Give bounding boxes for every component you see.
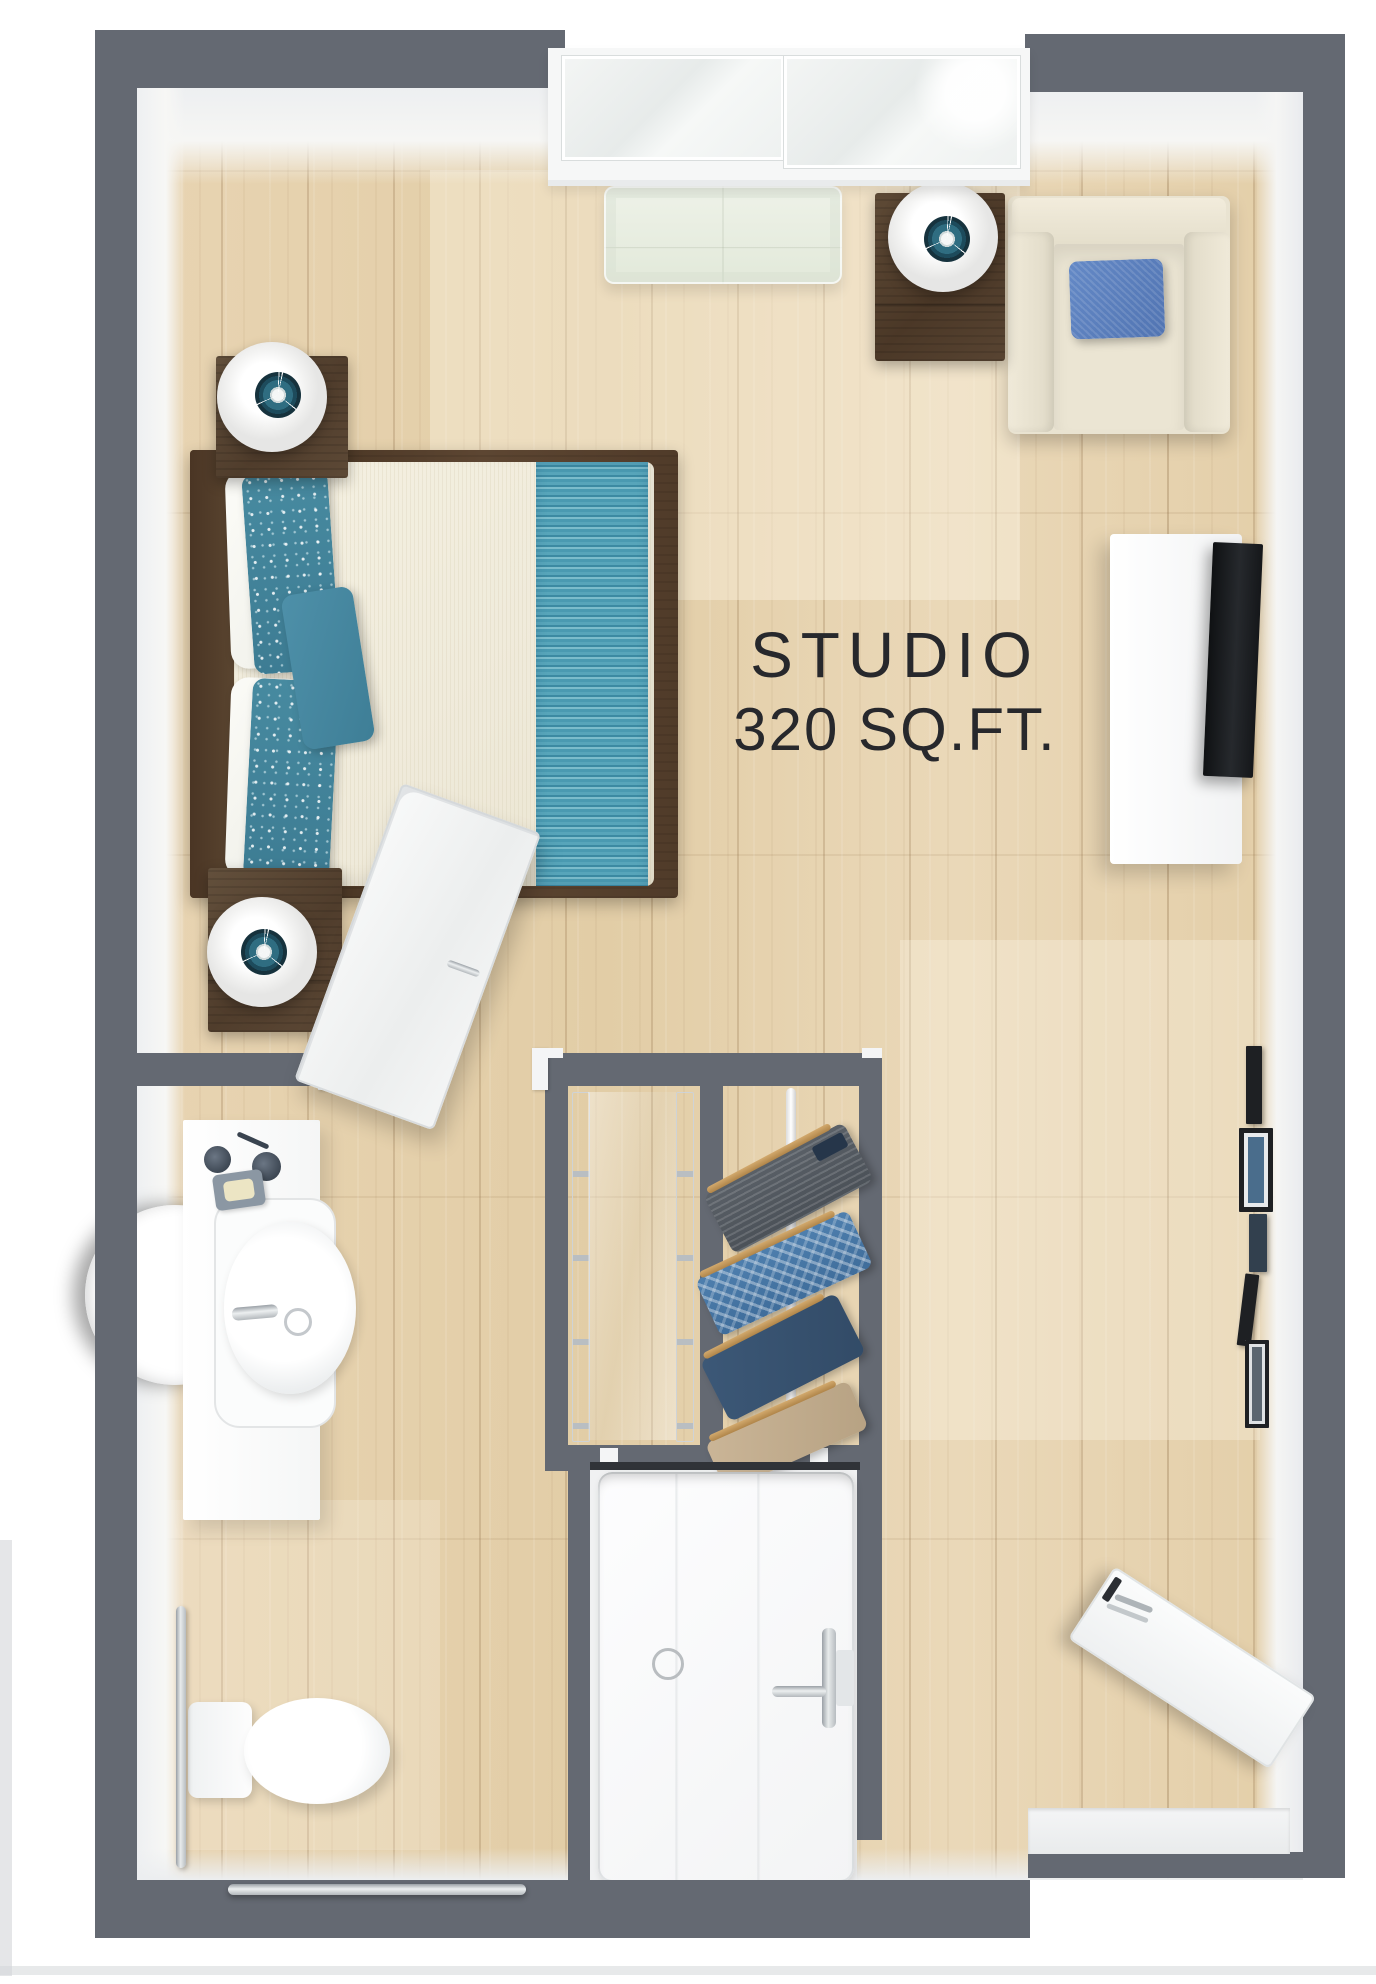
wall-entry-strip [1028, 1852, 1290, 1878]
wall-frame-icon [1246, 1046, 1262, 1124]
soap-dish-icon [212, 1169, 267, 1212]
wall-right [1303, 34, 1345, 1878]
door-latch [836, 1650, 854, 1706]
partition-closet-left [545, 1086, 568, 1468]
left-edge-strip [0, 1540, 12, 1976]
wall-top-left [95, 30, 565, 88]
chair-arm-right [1184, 232, 1230, 432]
partition-vestibule-right [857, 1468, 882, 1840]
peephole-icon [652, 1648, 684, 1680]
grab-bar-horizontal-icon [228, 1884, 526, 1895]
blue-throw-pillow-icon [1069, 258, 1166, 339]
partition-closet-header [545, 1053, 882, 1086]
tumbler-icon [204, 1146, 231, 1173]
window [548, 48, 1030, 186]
table-lamp-icon [888, 182, 998, 292]
table-lamp-icon [217, 342, 327, 452]
floor-light-patch [900, 940, 1260, 1440]
door-handle-icon [446, 959, 480, 977]
area-label-line2: 320 SQ.FT. [655, 692, 1135, 768]
table-lamp-icon [207, 897, 317, 1007]
glass-pane-overlay [588, 1092, 676, 1440]
ac-unit-icon [604, 186, 842, 284]
entry-threshold [1028, 1808, 1290, 1854]
window-pane-icon [784, 56, 1020, 168]
striped-runner-icon [536, 462, 648, 886]
lamp-shade-opening [255, 372, 301, 418]
grab-bar-vertical-icon [176, 1606, 186, 1868]
armchair [1008, 196, 1230, 434]
entry-door-icon [598, 1472, 854, 1882]
area-label-line1: STUDIO [655, 618, 1135, 692]
wall-left [95, 30, 137, 1938]
door-jamb [543, 1048, 563, 1058]
glass-closet-door-icon [676, 1092, 694, 1442]
soap-bar [223, 1178, 255, 1202]
floorplan-canvas: STUDIO 320 SQ.FT. [0, 0, 1376, 1984]
partition-vestibule-left [568, 1468, 590, 1880]
entry-header-shadow [590, 1462, 860, 1470]
tv-icon [1203, 542, 1263, 778]
window-pane-icon [562, 56, 784, 160]
chair-arm-left [1008, 232, 1054, 432]
door-lever-icon [772, 1686, 826, 1697]
wall-frame-icon [1239, 1128, 1273, 1212]
wall-bottom-right [1288, 1852, 1345, 1878]
wall-frame-icon [1245, 1340, 1269, 1428]
lamp-shade-opening [241, 929, 287, 975]
toilet-icon [244, 1698, 390, 1804]
partition-closet-right [859, 1086, 882, 1468]
door-jamb [862, 1048, 882, 1058]
door-handle-plate [822, 1628, 836, 1728]
area-label: STUDIO 320 SQ.FT. [655, 618, 1135, 768]
lamp-shade-opening [924, 216, 970, 262]
wall-frame-icon [1249, 1214, 1267, 1272]
wall-top-right [1025, 34, 1345, 92]
page-edge-line [0, 1966, 1376, 1975]
toilet-tank [188, 1702, 252, 1798]
drain-ring [284, 1308, 312, 1336]
